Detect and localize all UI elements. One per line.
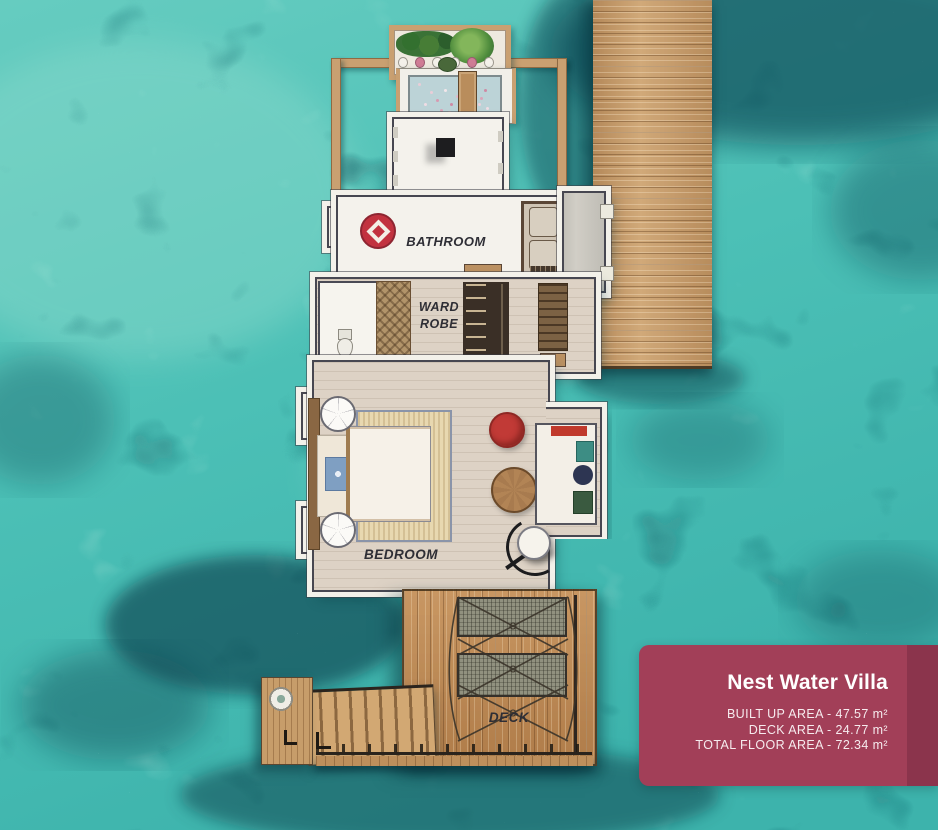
deck-railing xyxy=(316,752,592,755)
villa-areas: BUILT UP AREA - 47.57 m² DECK AREA - 24.… xyxy=(695,707,888,754)
towel-rack xyxy=(393,127,398,138)
bathroom-label: BATHROOM xyxy=(391,233,501,250)
villa-name: Nest Water Villa xyxy=(727,671,888,695)
foliage xyxy=(396,31,456,57)
bed xyxy=(346,426,431,522)
green-cushion xyxy=(573,491,593,514)
landing-platform xyxy=(261,677,313,765)
towel-rack xyxy=(498,163,503,174)
deck-label: DECK xyxy=(478,709,540,726)
built-up-area: BUILT UP AREA - 47.57 m² xyxy=(695,707,888,723)
tub-caddy-tray xyxy=(458,71,477,122)
shelving-unit xyxy=(463,282,509,370)
towel-rack xyxy=(498,131,503,142)
turtle-decor xyxy=(438,57,457,72)
round-red-chair xyxy=(489,412,525,448)
luggage-rack xyxy=(538,283,568,351)
pergola-beam-right xyxy=(557,58,567,202)
wardrobe-label: WARD ROBE xyxy=(409,299,469,333)
shower-room xyxy=(392,117,504,204)
floor-plan-scene: BATHROOM WARD ROBE xyxy=(0,0,938,830)
entry-step xyxy=(600,204,614,219)
red-cushion xyxy=(551,426,587,436)
pergola-beam-left xyxy=(331,58,341,202)
toilet-room xyxy=(318,281,380,365)
bathtub xyxy=(408,75,502,120)
navy-cushion xyxy=(573,465,593,485)
jetty-walkway xyxy=(593,0,712,369)
shower-mat xyxy=(436,138,455,157)
wardrobe-closet xyxy=(376,281,411,369)
towel-rack xyxy=(393,151,398,162)
towel-rack xyxy=(393,175,398,186)
flower-petals xyxy=(418,83,421,86)
faucet xyxy=(557,218,561,222)
faucet xyxy=(557,251,561,255)
rope-netting xyxy=(438,589,598,765)
deck-area: DECK AREA - 24.77 m² xyxy=(695,723,888,739)
life-ring-icon xyxy=(268,686,294,712)
teal-cushion xyxy=(576,441,594,462)
mooring-cleat xyxy=(284,730,297,745)
tub-terrace xyxy=(396,68,516,124)
bedside-table xyxy=(320,512,356,548)
villa-info-card: Nest Water Villa BUILT UP AREA - 47.57 m… xyxy=(639,645,938,786)
round-wood-table xyxy=(491,467,537,513)
bedside-table xyxy=(320,396,356,432)
daybed xyxy=(535,423,597,525)
entry-step xyxy=(600,266,614,281)
deck-edge-board xyxy=(316,756,593,766)
hanging-chair-seat xyxy=(517,526,551,560)
total-floor-area: TOTAL FLOOR AREA - 72.34 m² xyxy=(695,738,888,754)
bedroom-label: BEDROOM xyxy=(356,546,446,563)
toilet-bowl xyxy=(337,338,353,358)
card-edge-shade xyxy=(907,645,938,786)
